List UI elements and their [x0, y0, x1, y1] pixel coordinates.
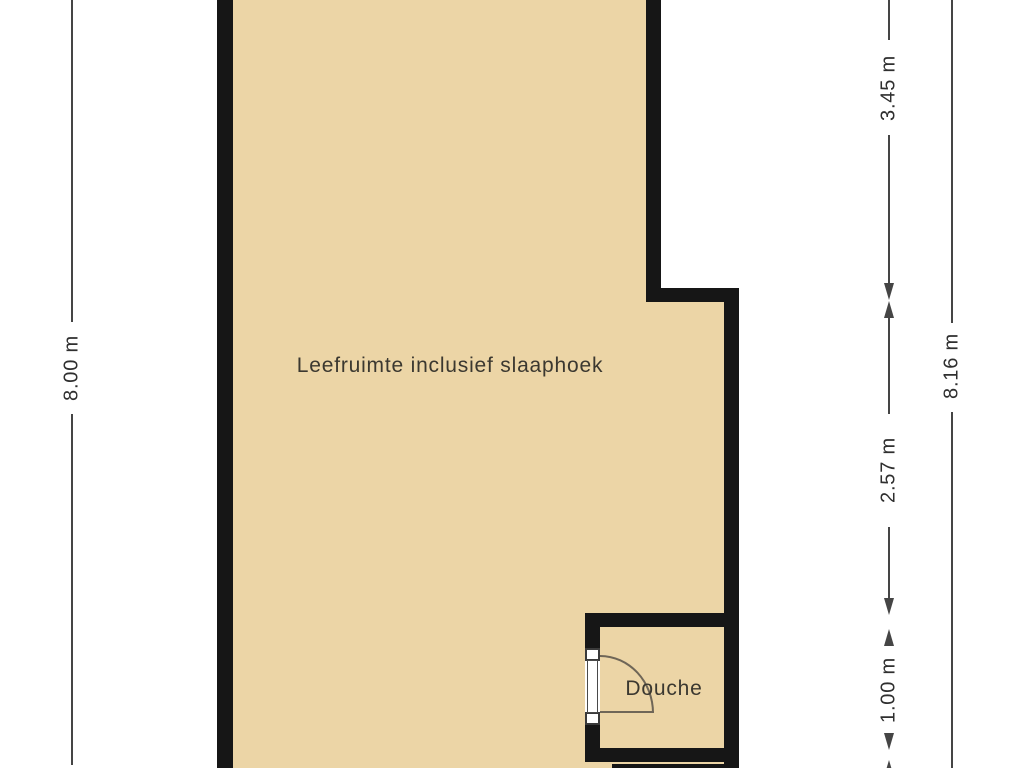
dim-arrow-down-douche-top: [884, 598, 894, 615]
dim-left-line-top: [71, 0, 73, 322]
wall-douche-top: [585, 613, 739, 627]
wall-left: [217, 0, 233, 768]
door-open-leaf-line: [600, 711, 654, 713]
dim-inner-line-seg2b: [888, 527, 890, 598]
dim-arrow-up-douche-top: [884, 629, 894, 646]
wall-right-upper: [646, 0, 661, 302]
door-jamb-bottom: [585, 712, 600, 725]
room-label-douche: Douche: [625, 677, 702, 701]
wall-bottom-fragment: [612, 764, 739, 768]
dim-inner-line-seg2a: [888, 318, 890, 414]
dim-inner-label-100: 1.00 m: [878, 657, 901, 723]
dim-left-label: 8.00 m: [61, 335, 84, 401]
dim-arrow-down-step: [884, 283, 894, 300]
dim-outer-line-top: [951, 0, 953, 323]
dim-inner-line-seg1a: [888, 0, 890, 40]
wall-right-lower: [724, 288, 739, 768]
dim-arrow-down-douche-bottom: [884, 733, 894, 750]
dim-arrow-up-step: [884, 301, 894, 318]
door-leaf: [587, 660, 598, 713]
dim-inner-line-seg1b: [888, 135, 890, 285]
dim-left-line-bottom: [71, 414, 73, 765]
dim-outer-line-bottom: [951, 412, 953, 768]
room-label-leefruimte: Leefruimte inclusief slaaphoek: [297, 354, 604, 378]
floorplan-canvas: Leefruimte inclusief slaaphoek Douche 8.…: [0, 0, 1024, 768]
wall-douche-left-upper: [585, 613, 600, 649]
dim-inner-label-257: 2.57 m: [878, 437, 901, 503]
dim-outer-label: 8.16 m: [941, 333, 964, 399]
dim-inner-label-345: 3.45 m: [878, 55, 901, 121]
wall-douche-bottom: [585, 748, 739, 762]
dim-arrow-up-cutoff: [884, 760, 894, 768]
